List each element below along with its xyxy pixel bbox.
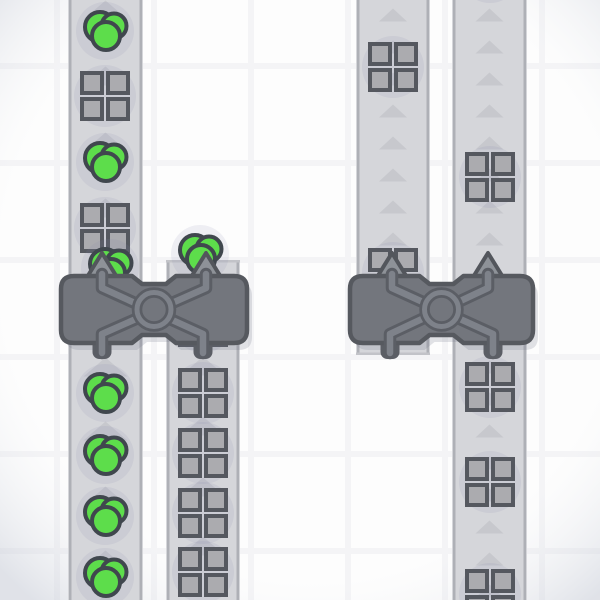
item-circle-cluster[interactable] — [76, 364, 134, 422]
item-window-square[interactable] — [172, 482, 234, 544]
item-window-square[interactable] — [74, 65, 136, 127]
item-window-square[interactable] — [459, 356, 521, 418]
item-circle-cluster[interactable] — [76, 2, 134, 60]
item-window-square[interactable] — [172, 362, 234, 424]
item-window-square[interactable] — [362, 36, 424, 98]
item-circle-cluster[interactable] — [76, 133, 134, 191]
game-viewport — [0, 0, 600, 600]
item-window-square[interactable] — [172, 422, 234, 484]
item-window-square[interactable] — [172, 541, 234, 600]
item-window-square[interactable] — [459, 451, 521, 513]
item-circle-cluster[interactable] — [76, 426, 134, 484]
item-window-square[interactable] — [459, 146, 521, 208]
factory-canvas — [0, 0, 600, 600]
item-circle-cluster[interactable] — [76, 487, 134, 545]
